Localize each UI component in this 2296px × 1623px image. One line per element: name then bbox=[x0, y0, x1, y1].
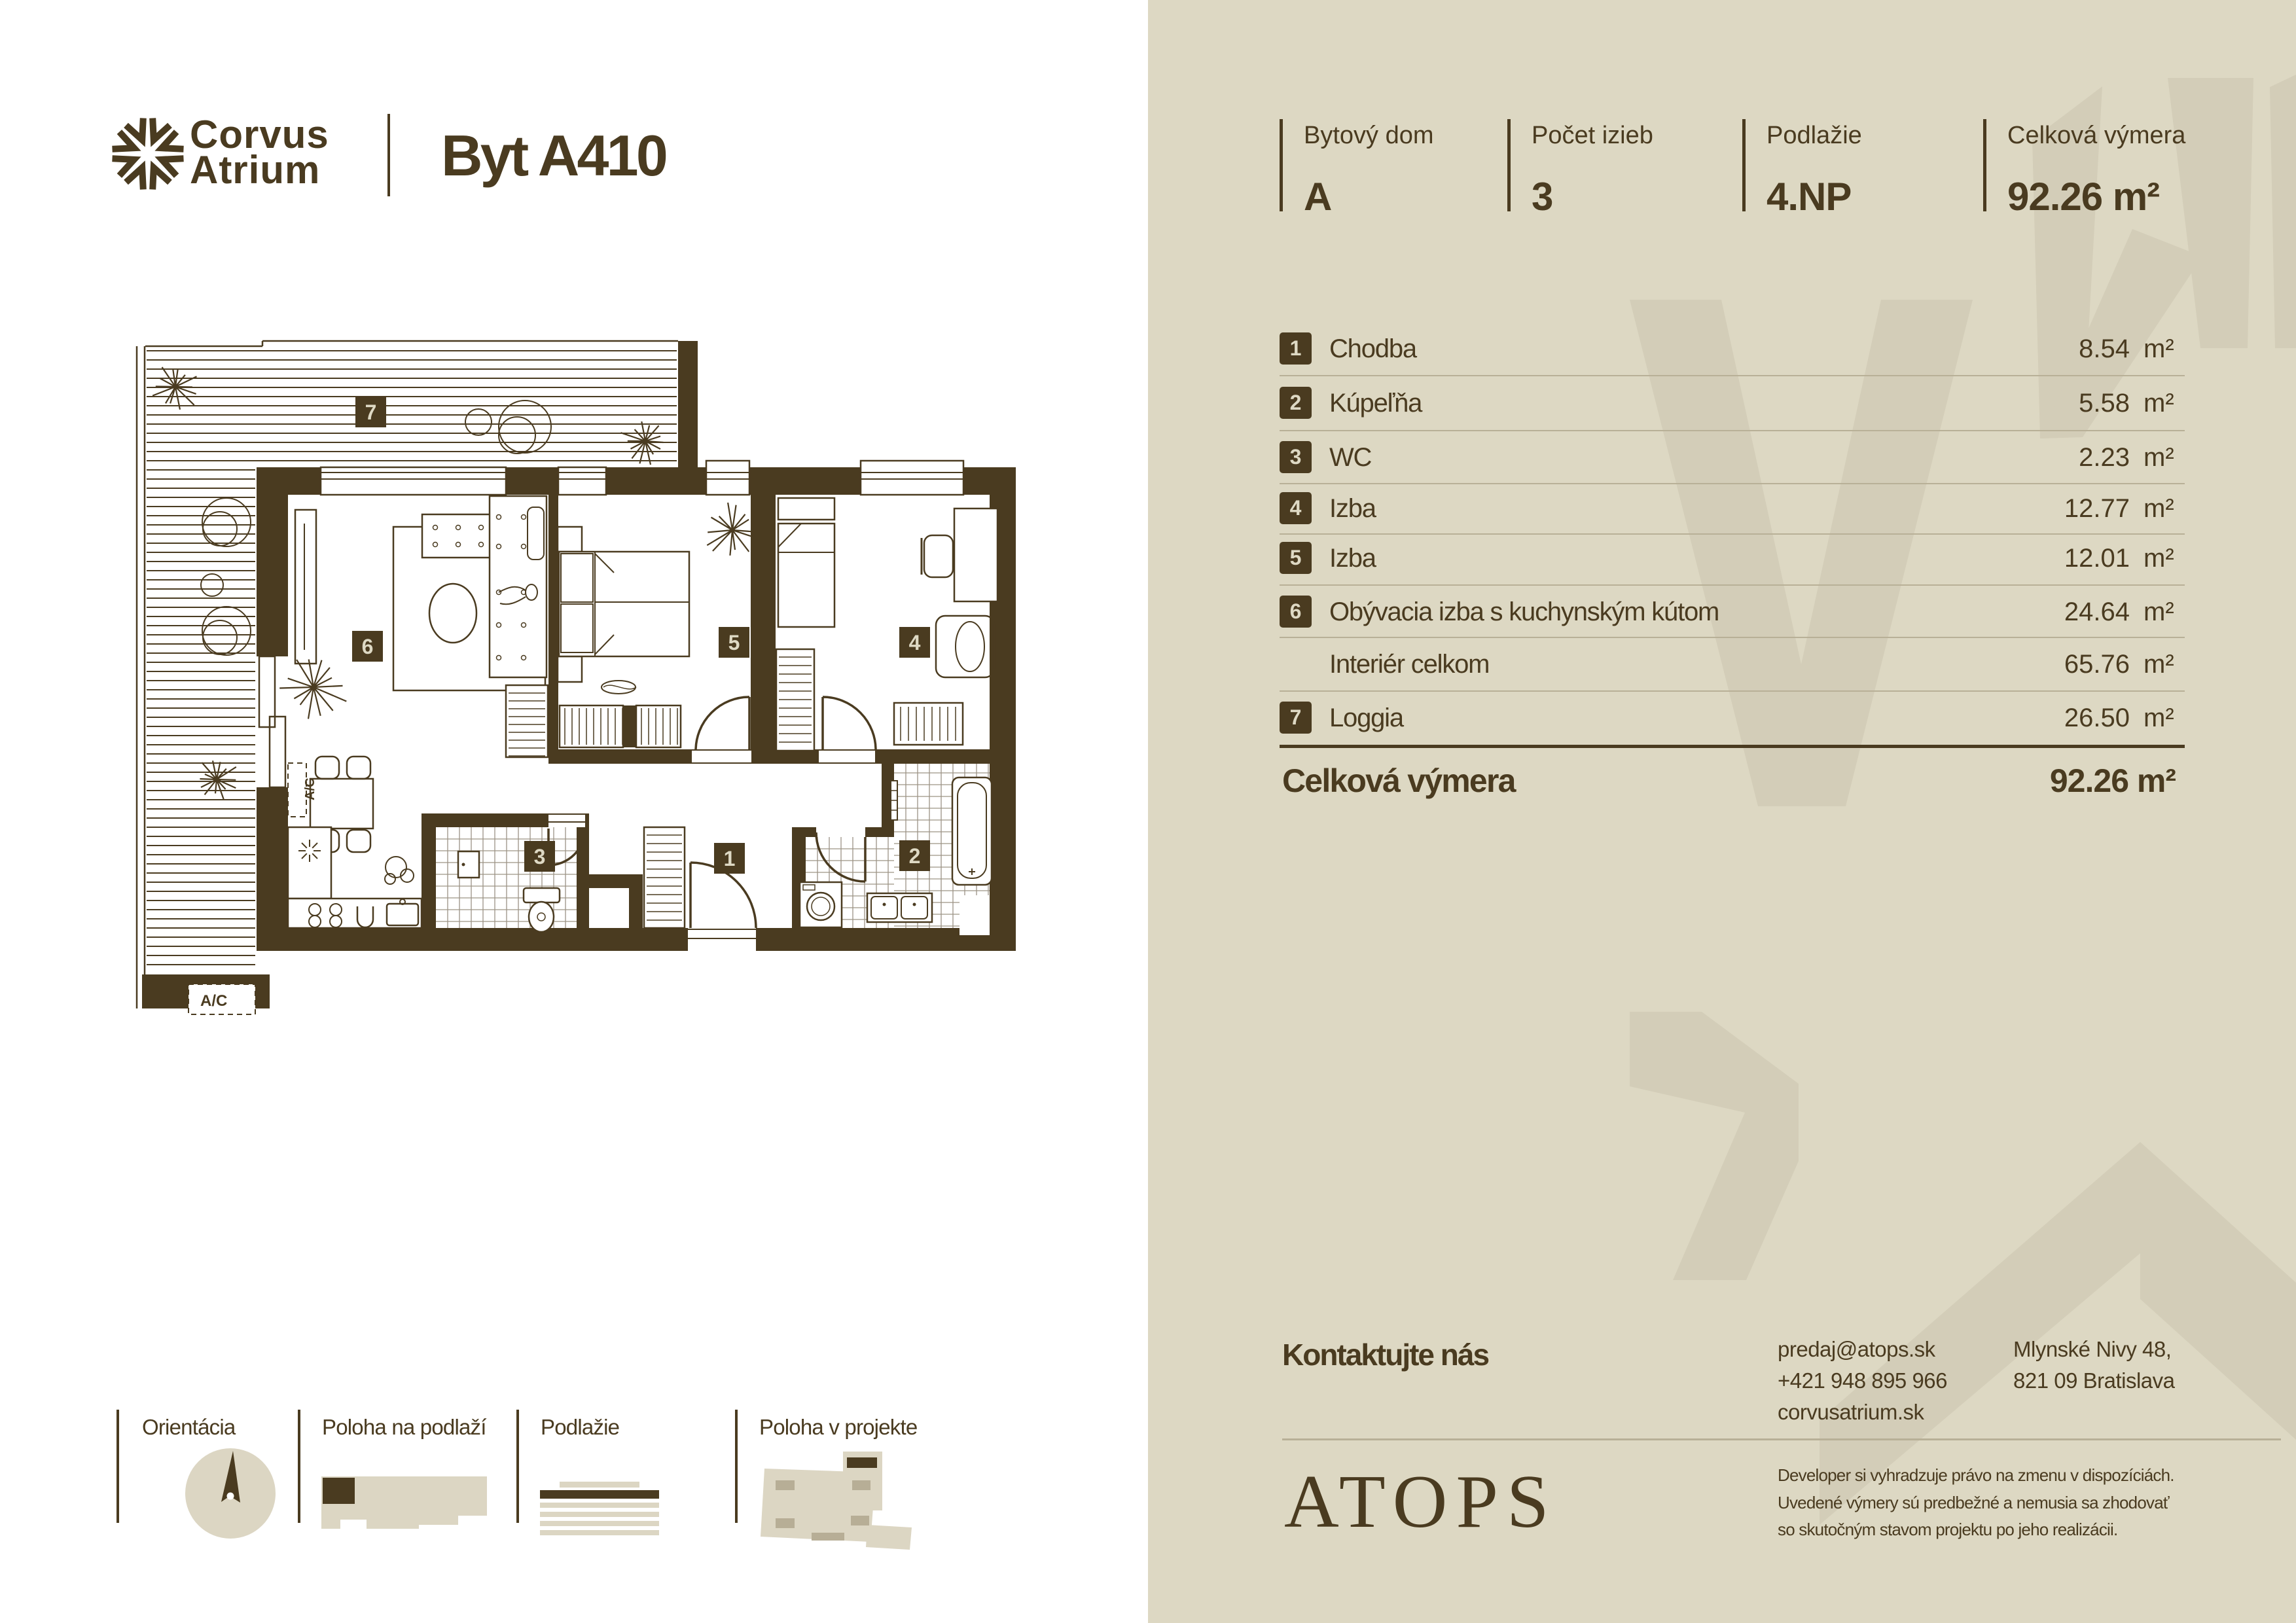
svg-text:A/C: A/C bbox=[200, 992, 227, 1010]
svg-text:2: 2 bbox=[909, 844, 921, 868]
svg-text:5: 5 bbox=[728, 631, 740, 654]
svg-text:Byt A410: Byt A410 bbox=[441, 123, 666, 188]
svg-text:7: 7 bbox=[365, 401, 377, 424]
svg-text:Poloha v projekte: Poloha v projekte bbox=[759, 1415, 917, 1439]
svg-text:4: 4 bbox=[909, 631, 921, 654]
svg-text:Poloha na podlaží: Poloha na podlaží bbox=[322, 1415, 486, 1439]
svg-text:6: 6 bbox=[362, 635, 374, 658]
svg-text:Atrium: Atrium bbox=[190, 148, 320, 192]
svg-text:1: 1 bbox=[724, 847, 736, 870]
svg-text:A/C: A/C bbox=[303, 778, 317, 800]
svg-text:Podlažie: Podlažie bbox=[541, 1415, 619, 1439]
svg-text:Orientácia: Orientácia bbox=[142, 1415, 236, 1439]
svg-text:3: 3 bbox=[534, 845, 546, 868]
